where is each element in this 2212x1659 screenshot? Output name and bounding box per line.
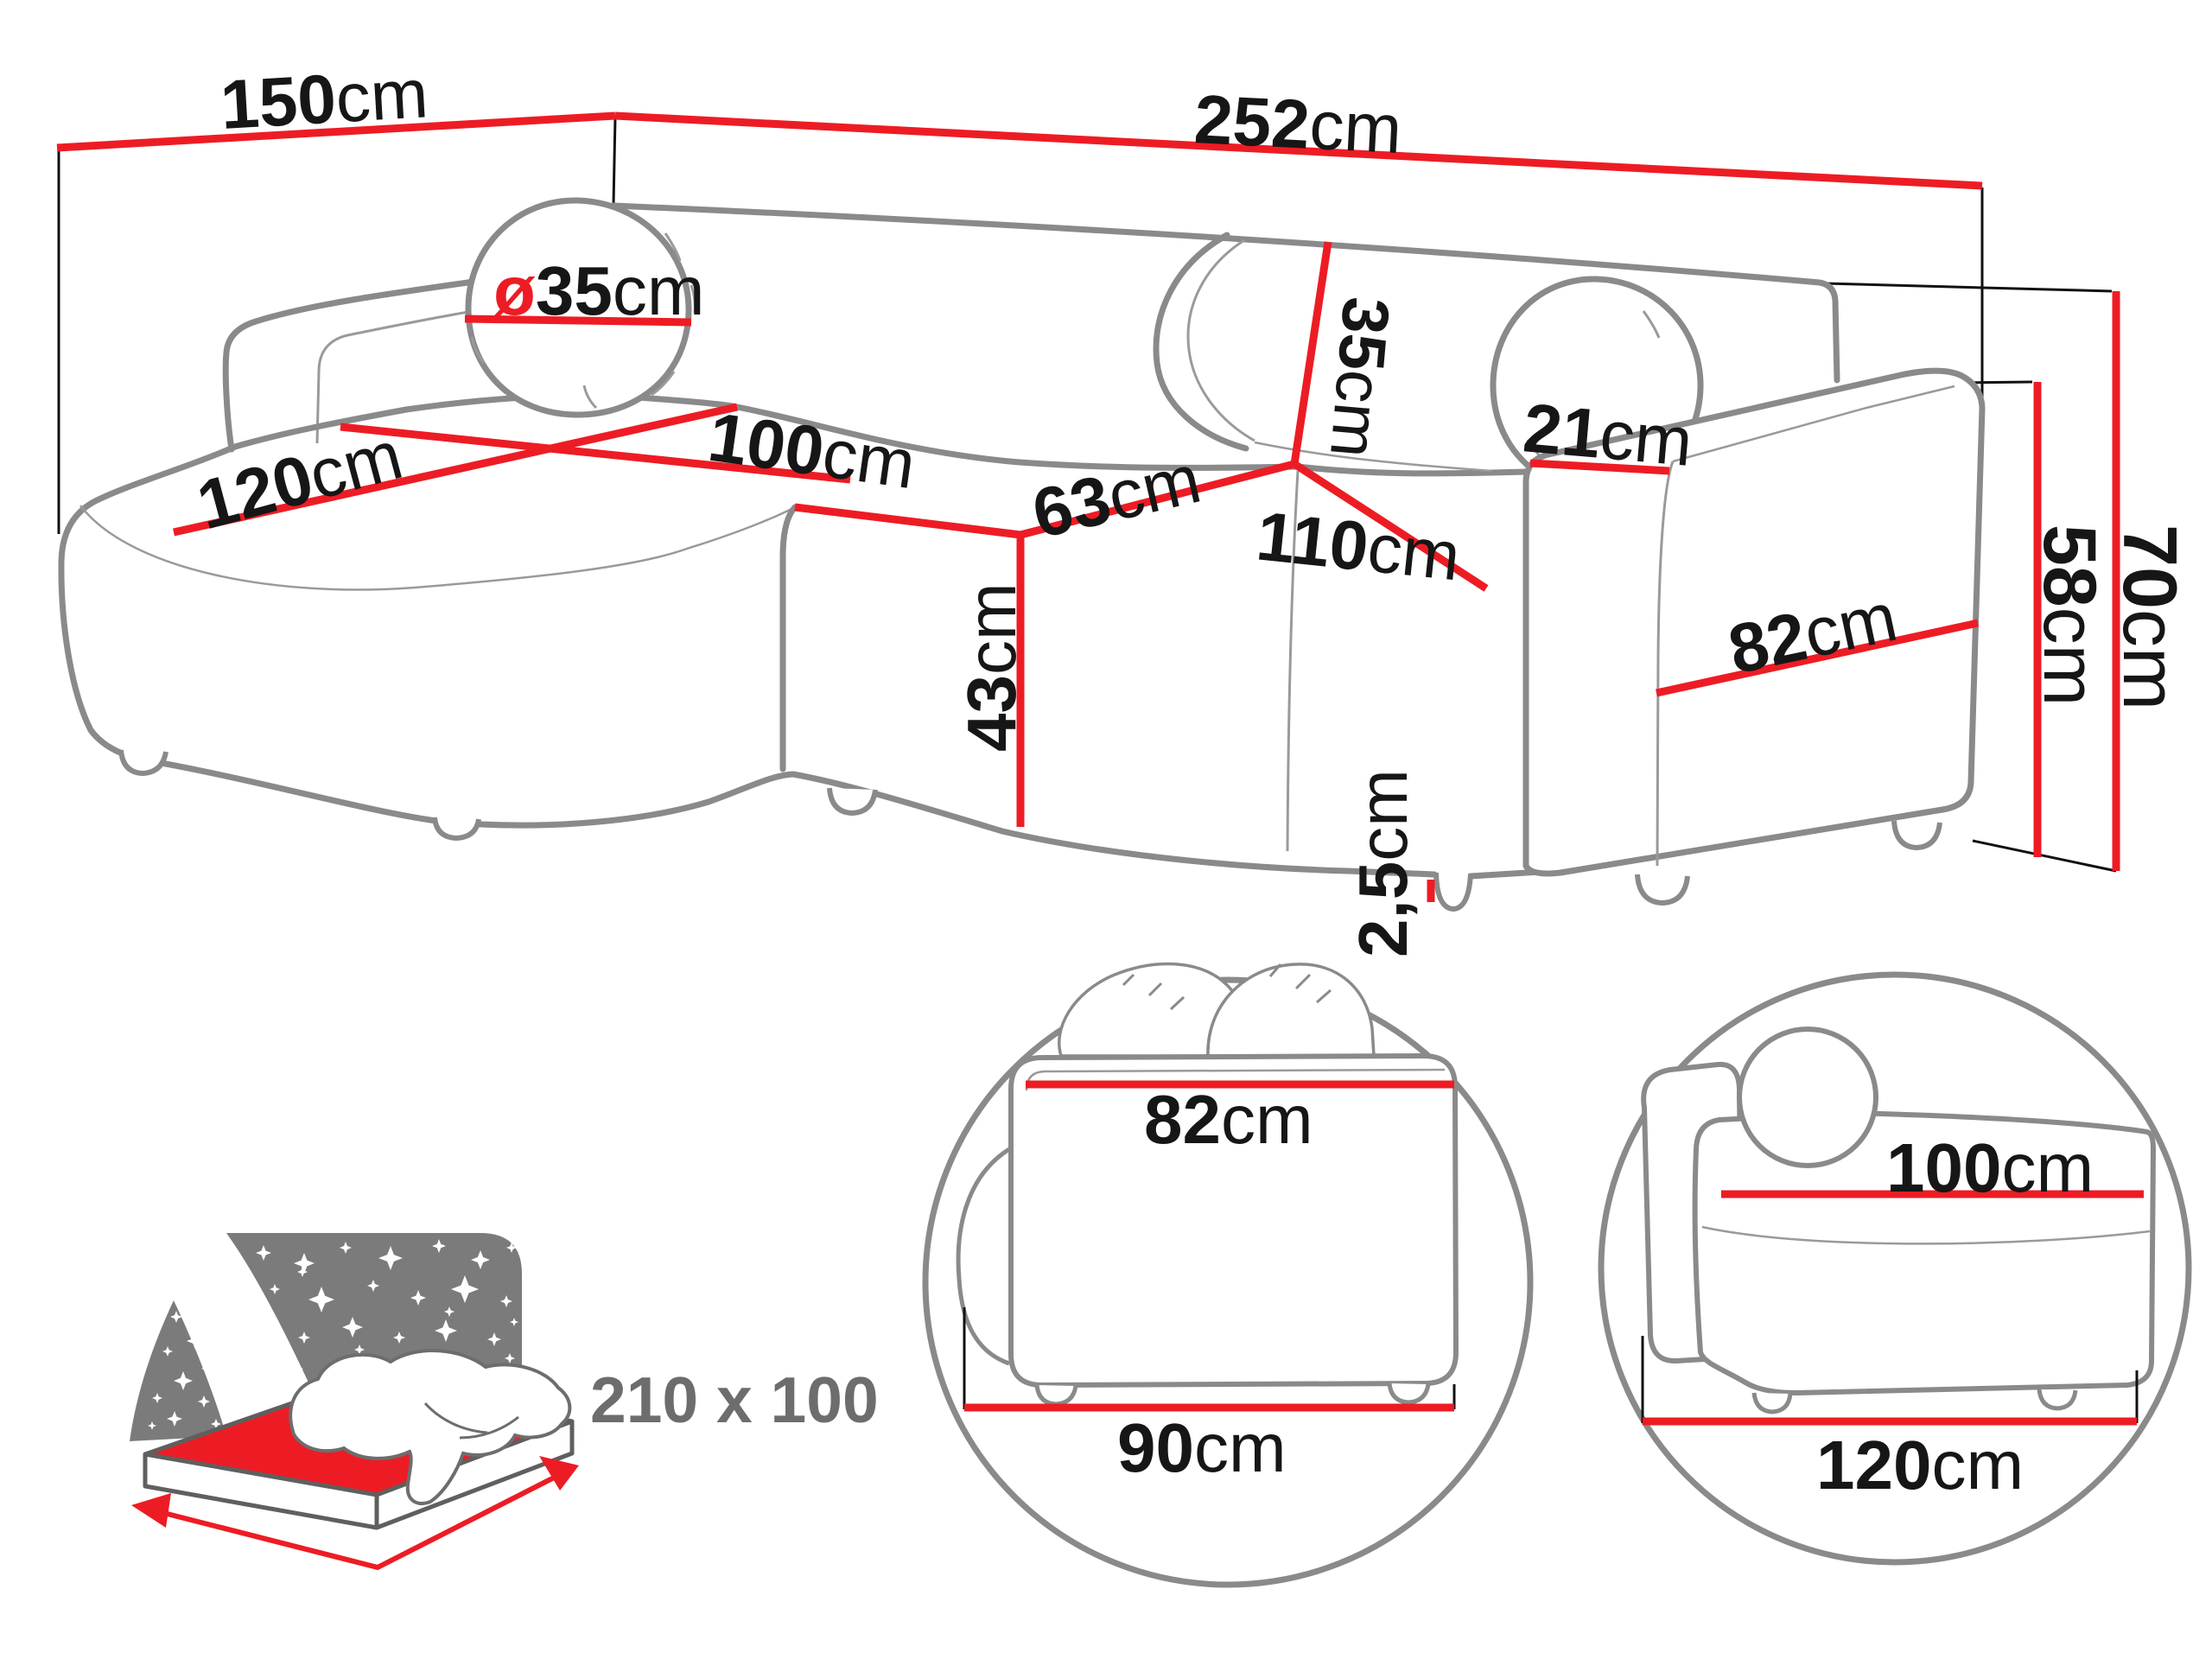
svg-text:ø35cm: ø35cm bbox=[493, 252, 705, 329]
svg-text:70cm: 70cm bbox=[2107, 524, 2193, 710]
svg-text:252cm: 252cm bbox=[1192, 80, 1403, 168]
svg-text:43cm: 43cm bbox=[953, 582, 1030, 752]
svg-text:82cm: 82cm bbox=[1144, 1081, 1313, 1158]
svg-text:35cm: 35cm bbox=[1316, 295, 1403, 461]
svg-text:58cm: 58cm bbox=[2028, 524, 2111, 706]
svg-text:2,5cm: 2,5cm bbox=[1344, 769, 1421, 957]
svg-text:210 x 100: 210 x 100 bbox=[590, 1363, 879, 1436]
svg-text:150cm: 150cm bbox=[219, 54, 430, 143]
svg-text:21cm: 21cm bbox=[1521, 389, 1696, 480]
svg-text:90cm: 90cm bbox=[1117, 1409, 1287, 1486]
svg-text:120cm: 120cm bbox=[1816, 1427, 2024, 1503]
svg-text:100cm: 100cm bbox=[1886, 1129, 2094, 1206]
